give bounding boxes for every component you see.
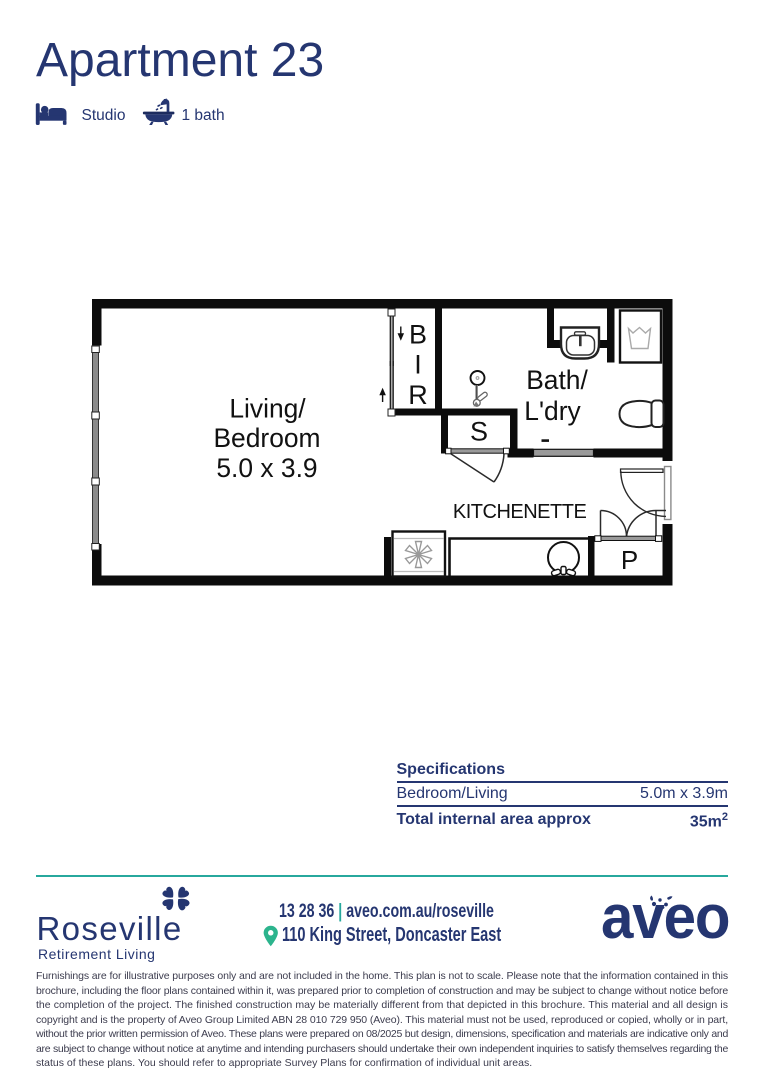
svg-text:P: P [621,545,638,575]
svg-text:5.0 x 3.9: 5.0 x 3.9 [216,453,317,483]
svg-text:Bedroom: Bedroom [213,423,320,453]
svg-text:L'dry: L'dry [524,396,581,426]
svg-text:R: R [408,380,428,410]
svg-text:S: S [470,417,488,447]
svg-text:B: B [409,320,427,350]
svg-text:I: I [414,350,422,380]
svg-text:Bath/: Bath/ [526,365,588,395]
svg-text:Living/: Living/ [229,394,306,424]
svg-text:KITCHENETTE: KITCHENETTE [453,501,587,523]
